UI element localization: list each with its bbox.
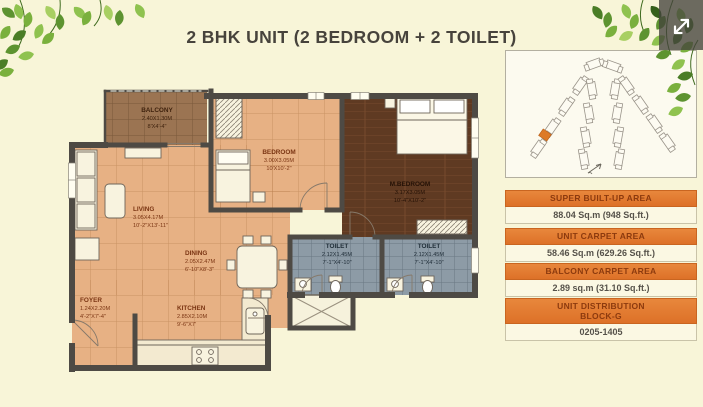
svg-text:3.00X3.05M: 3.00X3.05M <box>264 158 295 164</box>
card-header: UNIT DISTRIBUTION BLOCK-G <box>505 298 697 324</box>
info-card-unit-distribution: UNIT DISTRIBUTION BLOCK-G 0205-1405 <box>505 298 697 341</box>
card-header: UNIT CARPET AREA <box>505 228 697 245</box>
svg-text:3.05X4.17M: 3.05X4.17M <box>133 215 164 221</box>
card-header-line2: BLOCK-G <box>506 312 696 322</box>
card-value: 0205-1405 <box>505 324 697 341</box>
svg-text:2.85X2.10M: 2.85X2.10M <box>177 314 208 320</box>
svg-text:TOILET: TOILET <box>418 243 441 250</box>
svg-text:KITCHEN: KITCHEN <box>177 305 206 312</box>
svg-text:2.05X2.47M: 2.05X2.47M <box>185 259 216 265</box>
svg-text:3.17X3.05M: 3.17X3.05M <box>395 190 426 196</box>
svg-text:4'-2"X7'-4": 4'-2"X7'-4" <box>80 314 106 320</box>
tower-block-cluster <box>529 57 677 170</box>
svg-text:10'X10'-2": 10'X10'-2" <box>266 166 291 172</box>
info-card-unit-carpet-area: UNIT CARPET AREA 58.46 Sq.m (629.26 Sq.f… <box>505 228 697 262</box>
side-table <box>385 98 395 108</box>
dining-table <box>237 246 277 288</box>
floor-plan: BALCONY 2.40X1.30M 8'X4'-4" BEDROOM 3.00… <box>65 88 480 372</box>
expand-button[interactable] <box>659 0 703 50</box>
site-key-plan <box>505 50 697 178</box>
north-arrow-icon <box>588 164 601 174</box>
card-header: SUPER BUILT-UP AREA <box>505 190 697 207</box>
armchair <box>75 238 99 260</box>
card-value: 88.04 Sq.m (948 Sq.ft.) <box>505 207 697 224</box>
svg-text:TOILET: TOILET <box>326 243 349 250</box>
floor-plan-page: 2 BHK UNIT (2 BEDROOM + 2 TOILET) <box>0 0 703 407</box>
label-master-bedroom: M.BEDROOM 3.17X3.05M 10'-4"X10'-2" <box>390 181 430 204</box>
svg-text:M.BEDROOM: M.BEDROOM <box>390 181 430 188</box>
svg-text:1.24X2.20M: 1.24X2.20M <box>80 306 111 312</box>
svg-text:10'-2"X13'-11": 10'-2"X13'-11" <box>133 223 168 229</box>
svg-text:2.12X1.45M: 2.12X1.45M <box>414 252 445 258</box>
service-shaft <box>290 295 353 328</box>
svg-text:2.12X1.45M: 2.12X1.45M <box>322 252 353 258</box>
svg-text:DINING: DINING <box>185 250 207 257</box>
svg-text:BEDROOM: BEDROOM <box>262 149 295 156</box>
svg-text:8'X4'-4": 8'X4'-4" <box>147 124 166 130</box>
label-bedroom: BEDROOM 3.00X3.05M 10'X10'-2" <box>262 149 295 172</box>
page-title: 2 BHK UNIT (2 BEDROOM + 2 TOILET) <box>0 27 703 48</box>
tv-console <box>125 148 161 158</box>
stove <box>192 347 218 365</box>
info-card-super-builtup-area: SUPER BUILT-UP AREA 88.04 Sq.m (948 Sq.f… <box>505 190 697 224</box>
bedside-table <box>253 192 265 202</box>
svg-text:7'-1"X4'-10": 7'-1"X4'-10" <box>414 260 443 266</box>
site-key-plan-drawing <box>506 51 696 177</box>
card-header: BALCONY CARPET AREA <box>505 263 697 280</box>
label-toilet-2: TOILET 2.12X1.45M 7'-1"X4'-10" <box>414 243 445 266</box>
coffee-table <box>105 184 125 218</box>
svg-text:FOYER: FOYER <box>80 297 102 304</box>
card-value: 2.89 sq.m (31.10 Sq.ft.) <box>505 280 697 297</box>
svg-text:9'-6"X7': 9'-6"X7' <box>177 322 196 328</box>
card-value: 58.46 Sq.m (629.26 Sq.ft.) <box>505 245 697 262</box>
floor-plan-drawing: BALCONY 2.40X1.30M 8'X4'-4" BEDROOM 3.00… <box>65 88 480 372</box>
info-card-balcony-carpet-area: BALCONY CARPET AREA 2.89 sq.m (31.10 Sq.… <box>505 263 697 297</box>
expand-icon <box>659 0 703 50</box>
svg-text:BALCONY: BALCONY <box>141 107 173 114</box>
svg-text:2.40X1.30M: 2.40X1.30M <box>142 116 173 122</box>
svg-text:6'-10"X8'-3": 6'-10"X8'-3" <box>185 267 214 273</box>
svg-text:10'-4"X10'-2": 10'-4"X10'-2" <box>394 198 426 204</box>
svg-text:LIVING: LIVING <box>133 206 154 213</box>
label-toilet-1: TOILET 2.12X1.45M 7'-1"X4'-10" <box>322 243 353 266</box>
svg-text:7'-1"X4'-10": 7'-1"X4'-10" <box>322 260 351 266</box>
